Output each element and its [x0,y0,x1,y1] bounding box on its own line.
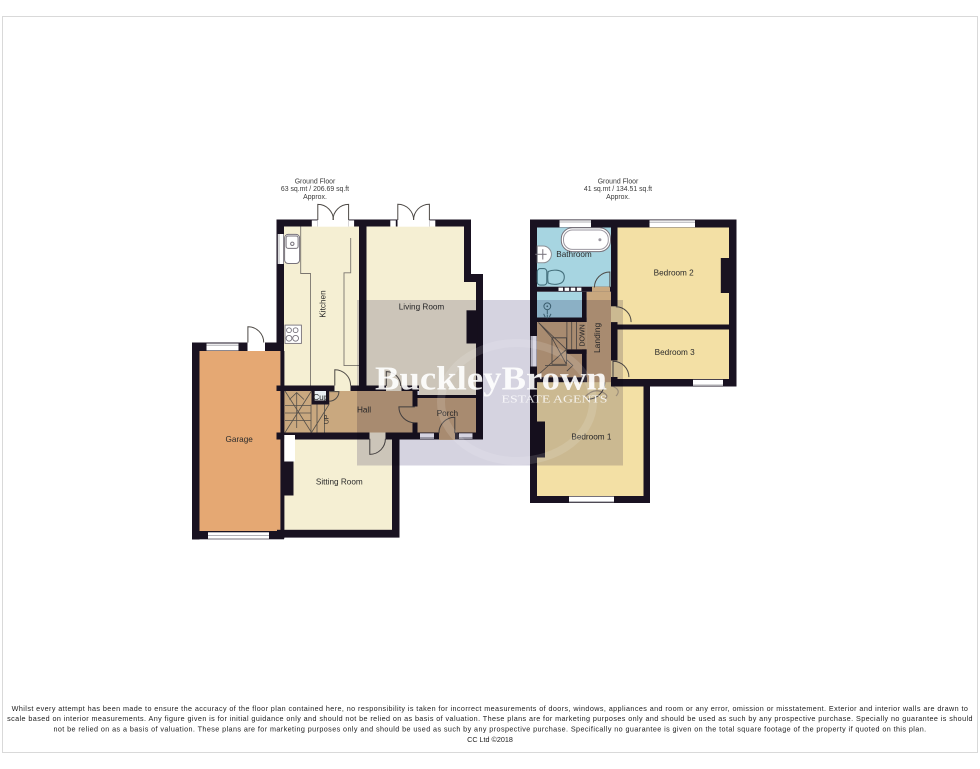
svg-text:Approx.: Approx. [303,194,327,201]
svg-text:Bedroom 2: Bedroom 2 [654,269,694,278]
svg-text:Kitchen: Kitchen [319,290,328,318]
svg-text:BuckleyBrown: BuckleyBrown [375,361,607,398]
svg-text:scale based on interior measur: scale based on interior measurements. An… [7,714,973,723]
svg-text:UP: UP [323,414,330,424]
svg-text:Bedroom 3: Bedroom 3 [655,348,695,357]
svg-text:Cup: Cup [313,392,329,402]
svg-text:63 sq.mt / 206.69 sq.ft: 63 sq.mt / 206.69 sq.ft [281,186,349,193]
svg-text:CC Ltd ©2018: CC Ltd ©2018 [467,735,513,744]
svg-text:not be relied on as a basis of: not be relied on as a basis of valuation… [53,724,926,733]
svg-text:ESTATE AGENTS: ESTATE AGENTS [502,394,608,405]
svg-text:Approx.: Approx. [606,194,630,201]
svg-text:Ground Floor: Ground Floor [295,179,336,186]
svg-text:Bathroom: Bathroom [556,250,592,259]
svg-text:Ground Floor: Ground Floor [598,179,639,186]
svg-text:41 sq.mt / 134.51 sq.ft: 41 sq.mt / 134.51 sq.ft [584,186,652,193]
svg-text:Sitting Room: Sitting Room [316,478,363,487]
svg-text:Garage: Garage [226,435,254,444]
svg-text:Whilst every attempt has been: Whilst every attempt has been made to en… [12,704,969,713]
